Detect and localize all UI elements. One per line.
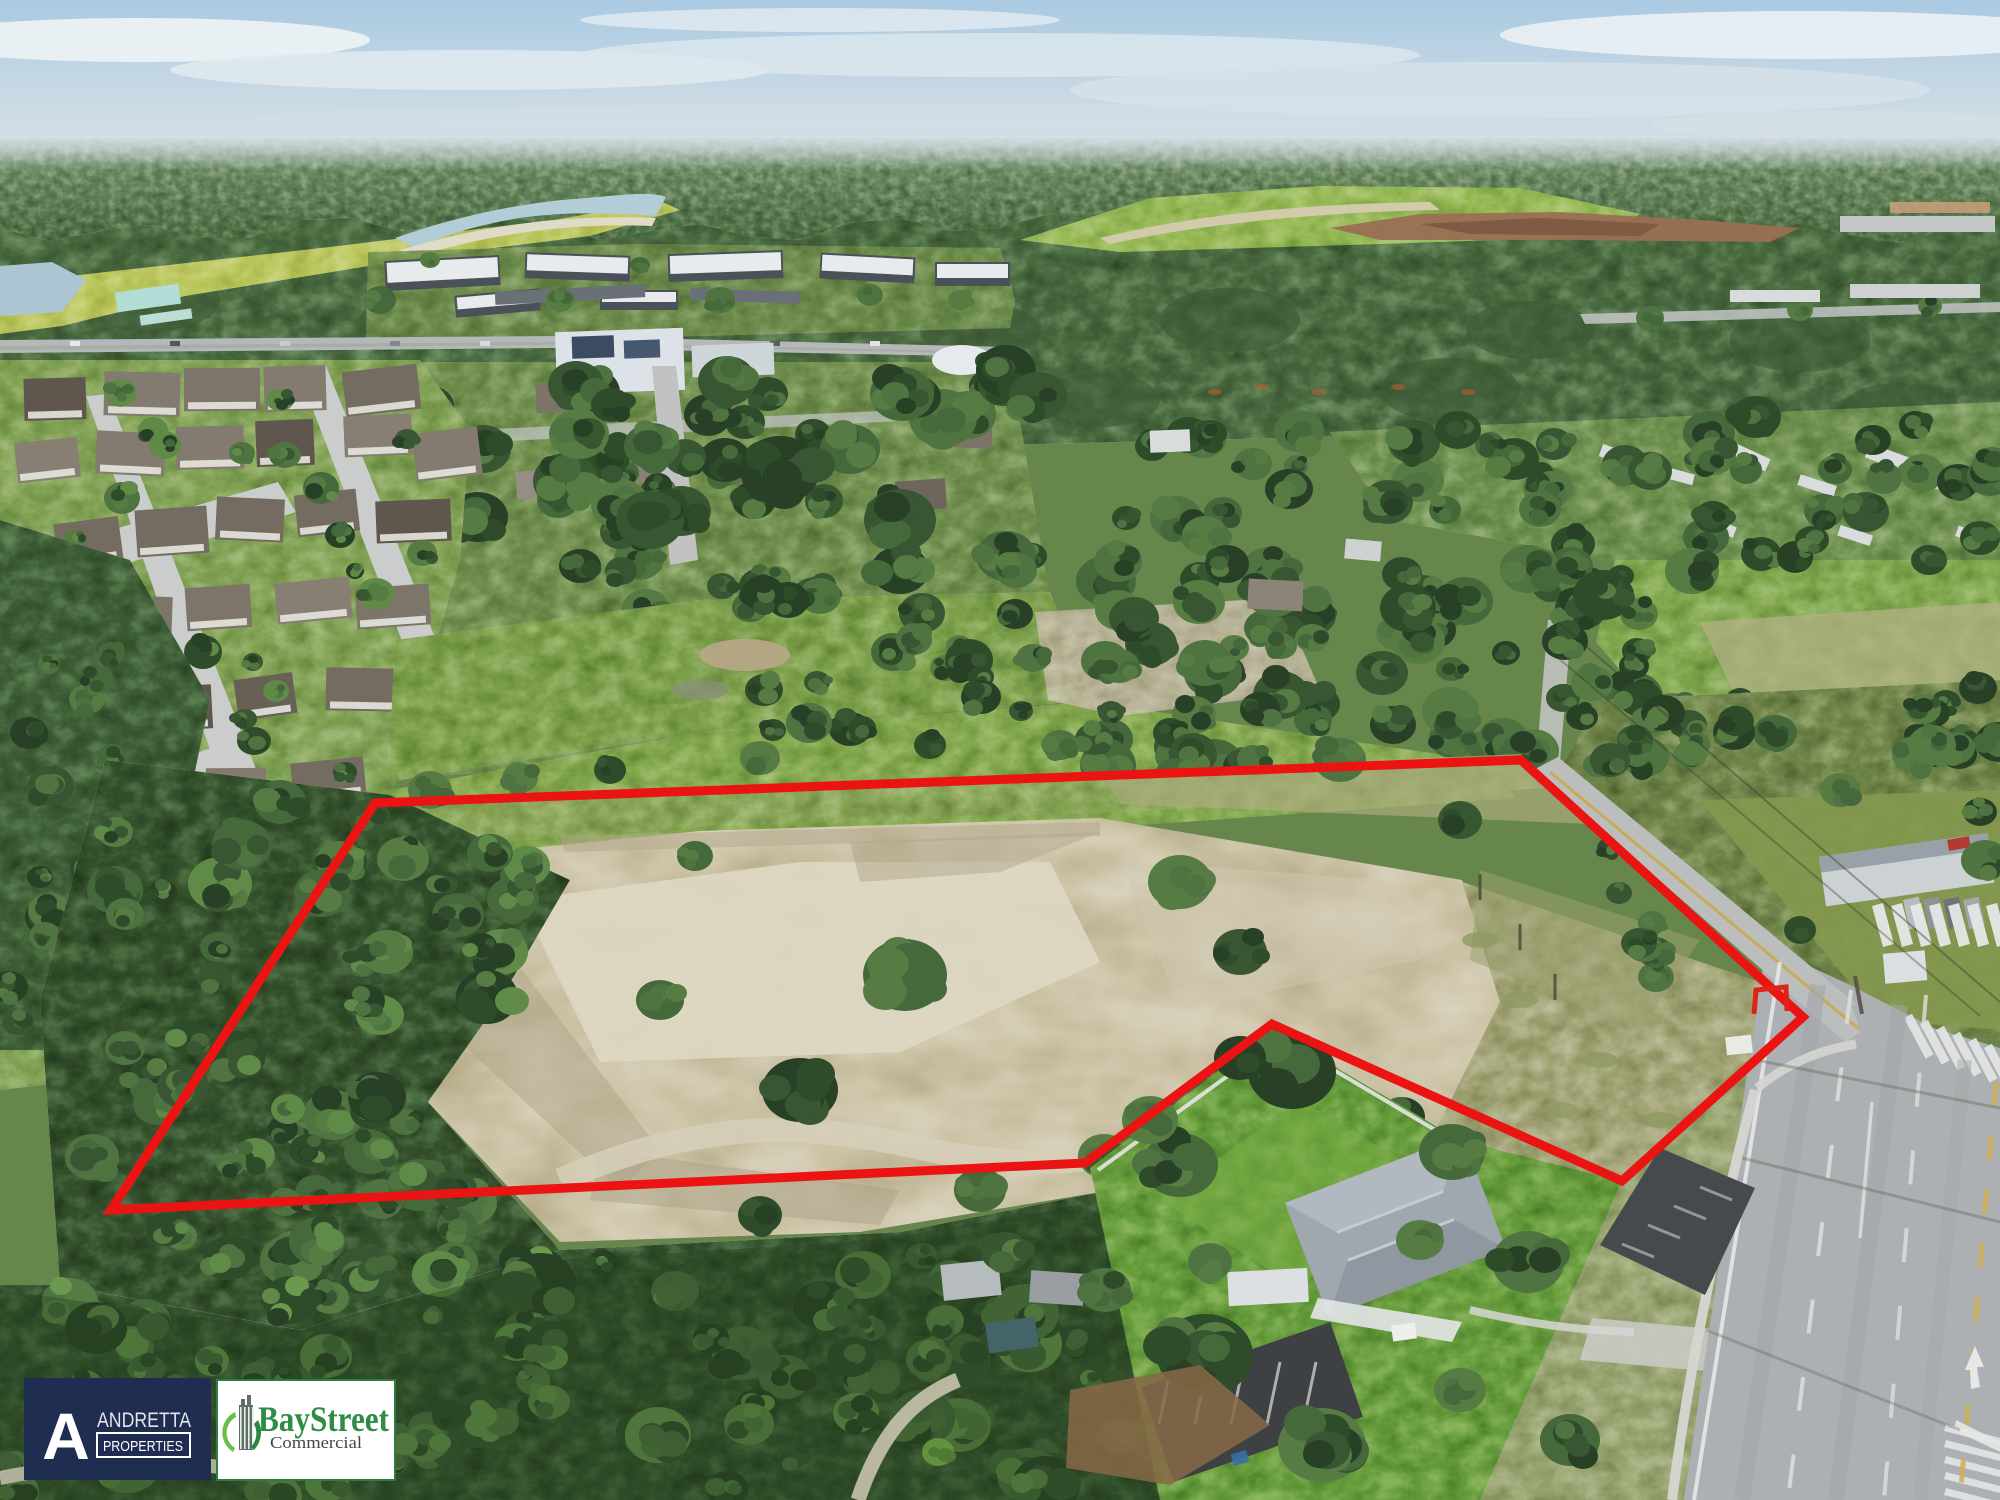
svg-text:ANDRETTA: ANDRETTA — [97, 1409, 191, 1432]
svg-text:A: A — [42, 1399, 90, 1473]
svg-text:PROPERTIES: PROPERTIES — [103, 1438, 183, 1455]
svg-text:Commercial: Commercial — [270, 1433, 362, 1452]
